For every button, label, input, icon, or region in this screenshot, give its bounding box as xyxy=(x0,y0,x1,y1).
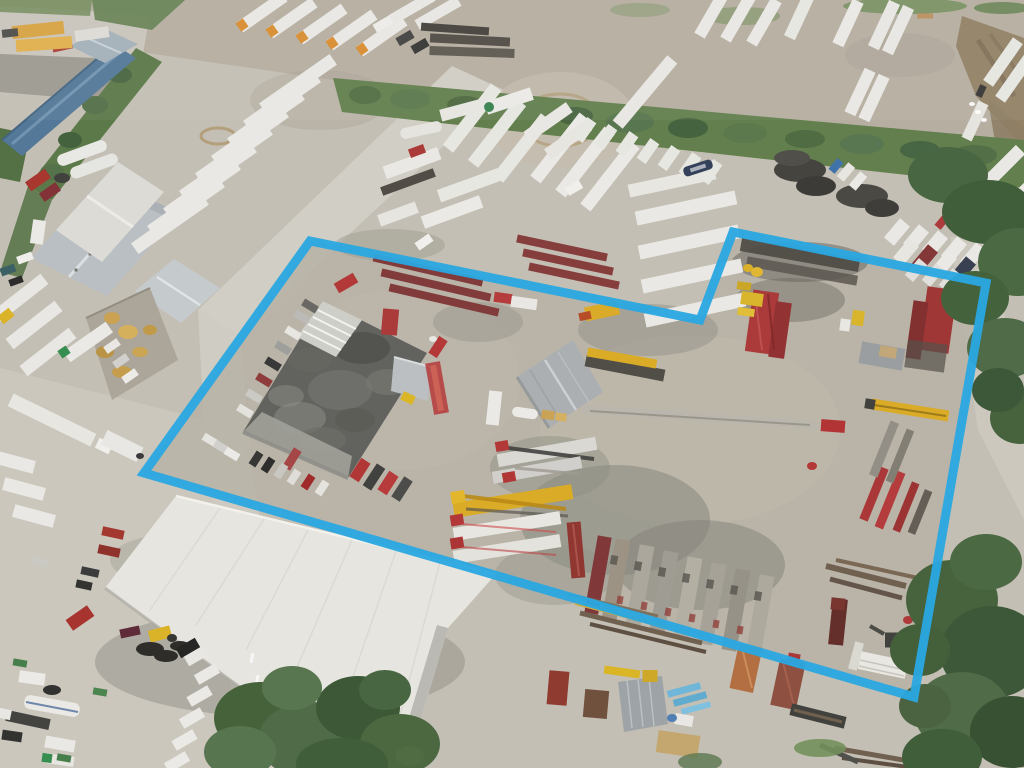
atmospheric-haze xyxy=(0,0,1024,120)
aerial-photo-industrial-yard xyxy=(0,0,1024,768)
aerial-photo-canvas xyxy=(0,0,1024,768)
